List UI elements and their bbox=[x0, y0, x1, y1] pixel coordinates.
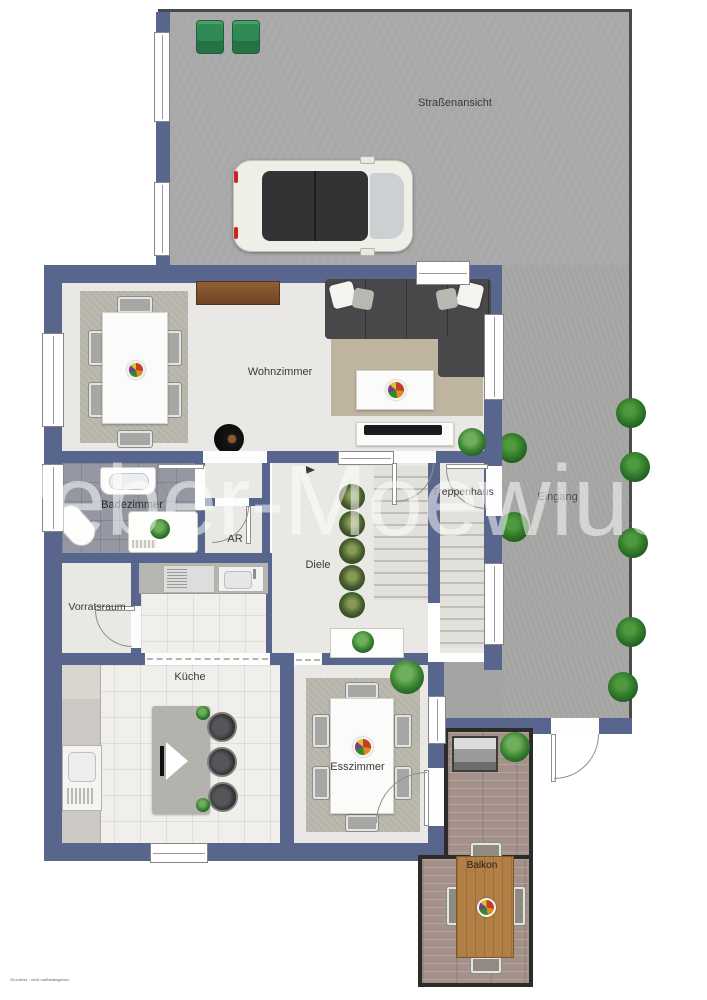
plant bbox=[352, 631, 374, 653]
fruit-bowl bbox=[477, 898, 496, 917]
car-mirror bbox=[360, 156, 375, 164]
sofa-pillow bbox=[351, 287, 374, 310]
bush bbox=[620, 452, 650, 482]
door-opening bbox=[215, 498, 249, 506]
sink-bowl bbox=[68, 752, 96, 782]
window bbox=[42, 464, 64, 532]
window bbox=[150, 843, 208, 863]
stairs-direction-arrow bbox=[306, 466, 315, 474]
plant bbox=[339, 511, 365, 537]
window bbox=[484, 314, 504, 400]
vestibule-floor bbox=[205, 463, 262, 498]
kitchen-sink bbox=[218, 566, 264, 592]
car-windshield bbox=[370, 173, 404, 239]
car bbox=[233, 160, 413, 252]
room-label-diele: Diele bbox=[295, 559, 341, 571]
open-passage-dashed bbox=[145, 653, 270, 665]
open-passage-dashed bbox=[294, 655, 322, 665]
bathroom-sink bbox=[100, 467, 156, 495]
dining-chair bbox=[394, 714, 412, 748]
window bbox=[416, 261, 470, 285]
floor-plan-page: Straßenansicht Eingang Wohnzimmer Badezi… bbox=[0, 0, 707, 1000]
room-label-kueche: Küche bbox=[165, 671, 215, 683]
bush bbox=[618, 528, 648, 558]
window bbox=[154, 32, 170, 122]
stove-grill bbox=[167, 569, 187, 588]
sofa-chaise bbox=[438, 337, 490, 377]
bush bbox=[608, 672, 638, 702]
cooktop bbox=[160, 742, 188, 780]
room-label-badezimmer: Badezimmer bbox=[92, 499, 172, 511]
trash-bin bbox=[232, 20, 260, 54]
room-label-wohnzimmer: Wohnzimmer bbox=[240, 366, 320, 378]
trash-bin bbox=[196, 20, 224, 54]
plant bbox=[500, 732, 530, 762]
faucet bbox=[253, 569, 256, 579]
bar-stool bbox=[207, 747, 237, 777]
fruit-bowl bbox=[353, 737, 373, 757]
room-label-strassenansicht: Straßenansicht bbox=[395, 97, 515, 109]
car-mirror bbox=[360, 248, 375, 256]
window bbox=[428, 696, 446, 744]
plant bbox=[339, 538, 365, 564]
sideboard bbox=[196, 281, 280, 305]
door-swing-arc bbox=[554, 734, 599, 779]
stove bbox=[163, 565, 215, 593]
site-outline-top bbox=[158, 9, 632, 12]
wall-segment bbox=[280, 653, 294, 860]
bath-mat bbox=[132, 540, 156, 548]
plant bbox=[196, 798, 210, 812]
window bbox=[484, 563, 504, 645]
room-label-balkon: Balkon bbox=[458, 860, 506, 871]
bush bbox=[616, 398, 646, 428]
car-taillight bbox=[234, 171, 238, 183]
plant bbox=[150, 519, 170, 539]
grill bbox=[452, 736, 498, 772]
sofa-pillow bbox=[435, 287, 458, 310]
room-label-esszimmer: Esszimmer bbox=[325, 761, 390, 773]
dining-chair bbox=[312, 714, 330, 748]
tv bbox=[364, 425, 442, 435]
plant bbox=[339, 565, 365, 591]
balcony-chair bbox=[512, 886, 526, 926]
dining-chair bbox=[345, 814, 379, 832]
drainer bbox=[67, 788, 95, 804]
balcony-door-opening bbox=[428, 768, 444, 826]
room-label-abstellraum: AR bbox=[215, 533, 255, 545]
bar-stool bbox=[207, 712, 237, 742]
wall-segment bbox=[62, 451, 203, 463]
wall-segment bbox=[428, 463, 440, 603]
wall-segment bbox=[267, 451, 338, 463]
plant bbox=[339, 592, 365, 618]
car-taillight bbox=[234, 227, 238, 239]
entry-walkway-lower bbox=[444, 662, 502, 718]
fruit-bowl bbox=[386, 380, 406, 400]
sink-bowl bbox=[224, 571, 252, 589]
staircase bbox=[440, 512, 484, 648]
wall-segment bbox=[44, 843, 448, 861]
plant bbox=[339, 484, 365, 510]
wall-segment bbox=[44, 653, 145, 665]
fireplace-stove bbox=[214, 424, 244, 454]
sink-bowl bbox=[109, 473, 149, 490]
room-label-vorratsraum: Vorratsraum bbox=[60, 601, 134, 613]
plant bbox=[196, 706, 210, 720]
plant bbox=[390, 660, 424, 694]
plant bbox=[458, 428, 486, 456]
balcony-chair bbox=[470, 956, 502, 974]
room-label-treppenhaus: Treppenhaus bbox=[430, 486, 496, 498]
wall-segment bbox=[44, 553, 272, 563]
cooktop-bar bbox=[160, 746, 164, 776]
door-opening bbox=[392, 451, 436, 463]
dining-chair bbox=[117, 430, 153, 448]
fruit-bowl bbox=[127, 361, 145, 379]
cooktop-panel bbox=[166, 742, 188, 780]
entry-gate-opening bbox=[551, 718, 599, 734]
site-outline-right bbox=[629, 9, 632, 720]
wall-segment bbox=[428, 662, 444, 860]
bush bbox=[616, 617, 646, 647]
window bbox=[154, 182, 170, 256]
room-label-eingang: Eingang bbox=[525, 491, 590, 503]
wall-segment bbox=[262, 463, 270, 556]
footer-disclaimer: Grundriss - nicht maßstabsgetreu bbox=[10, 977, 69, 982]
bush bbox=[499, 512, 529, 542]
window bbox=[42, 333, 64, 427]
interior-window bbox=[338, 451, 394, 465]
car-roof bbox=[262, 171, 368, 241]
bar-stool bbox=[208, 782, 238, 812]
door-opening bbox=[203, 451, 267, 463]
kitchen-corner-cabinet bbox=[62, 665, 100, 699]
kitchen-lower-sink bbox=[62, 745, 102, 811]
